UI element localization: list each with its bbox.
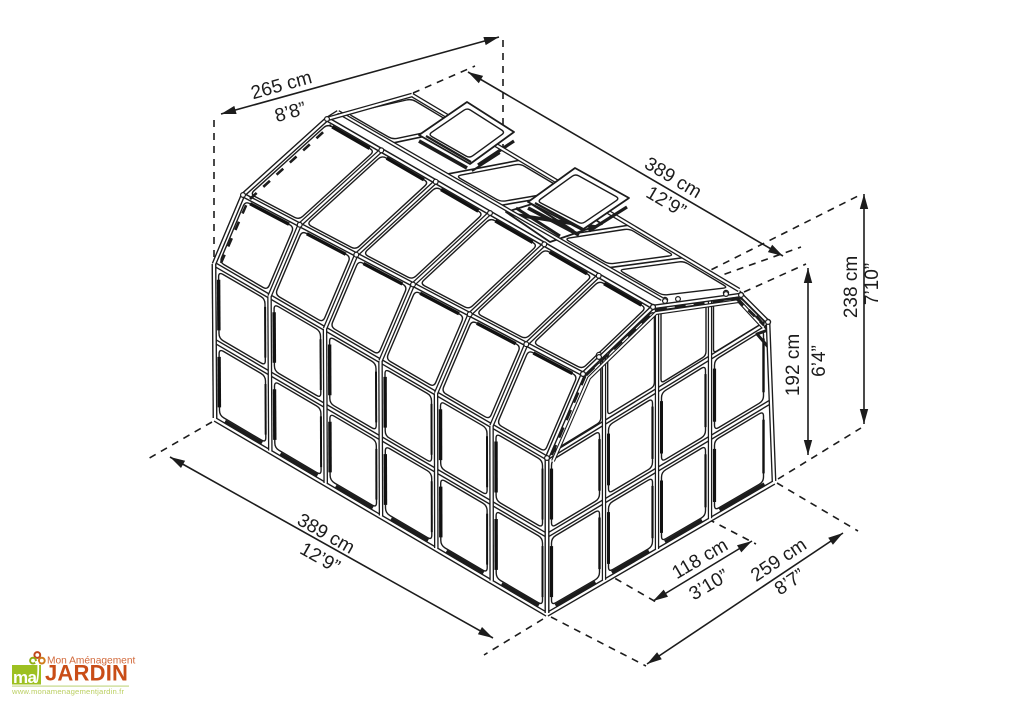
svg-text:238 cm: 238 cm	[841, 256, 862, 318]
svg-text:www.monamenagementjardin.fr: www.monamenagementjardin.fr	[11, 687, 124, 696]
svg-text:a: a	[28, 668, 38, 687]
svg-text:JARDIN: JARDIN	[45, 661, 128, 686]
svg-text:192 cm: 192 cm	[783, 334, 804, 396]
svg-text:m: m	[13, 668, 28, 687]
svg-text:6’4”: 6’4”	[809, 345, 830, 377]
svg-text:7’10”: 7’10”	[862, 263, 883, 305]
